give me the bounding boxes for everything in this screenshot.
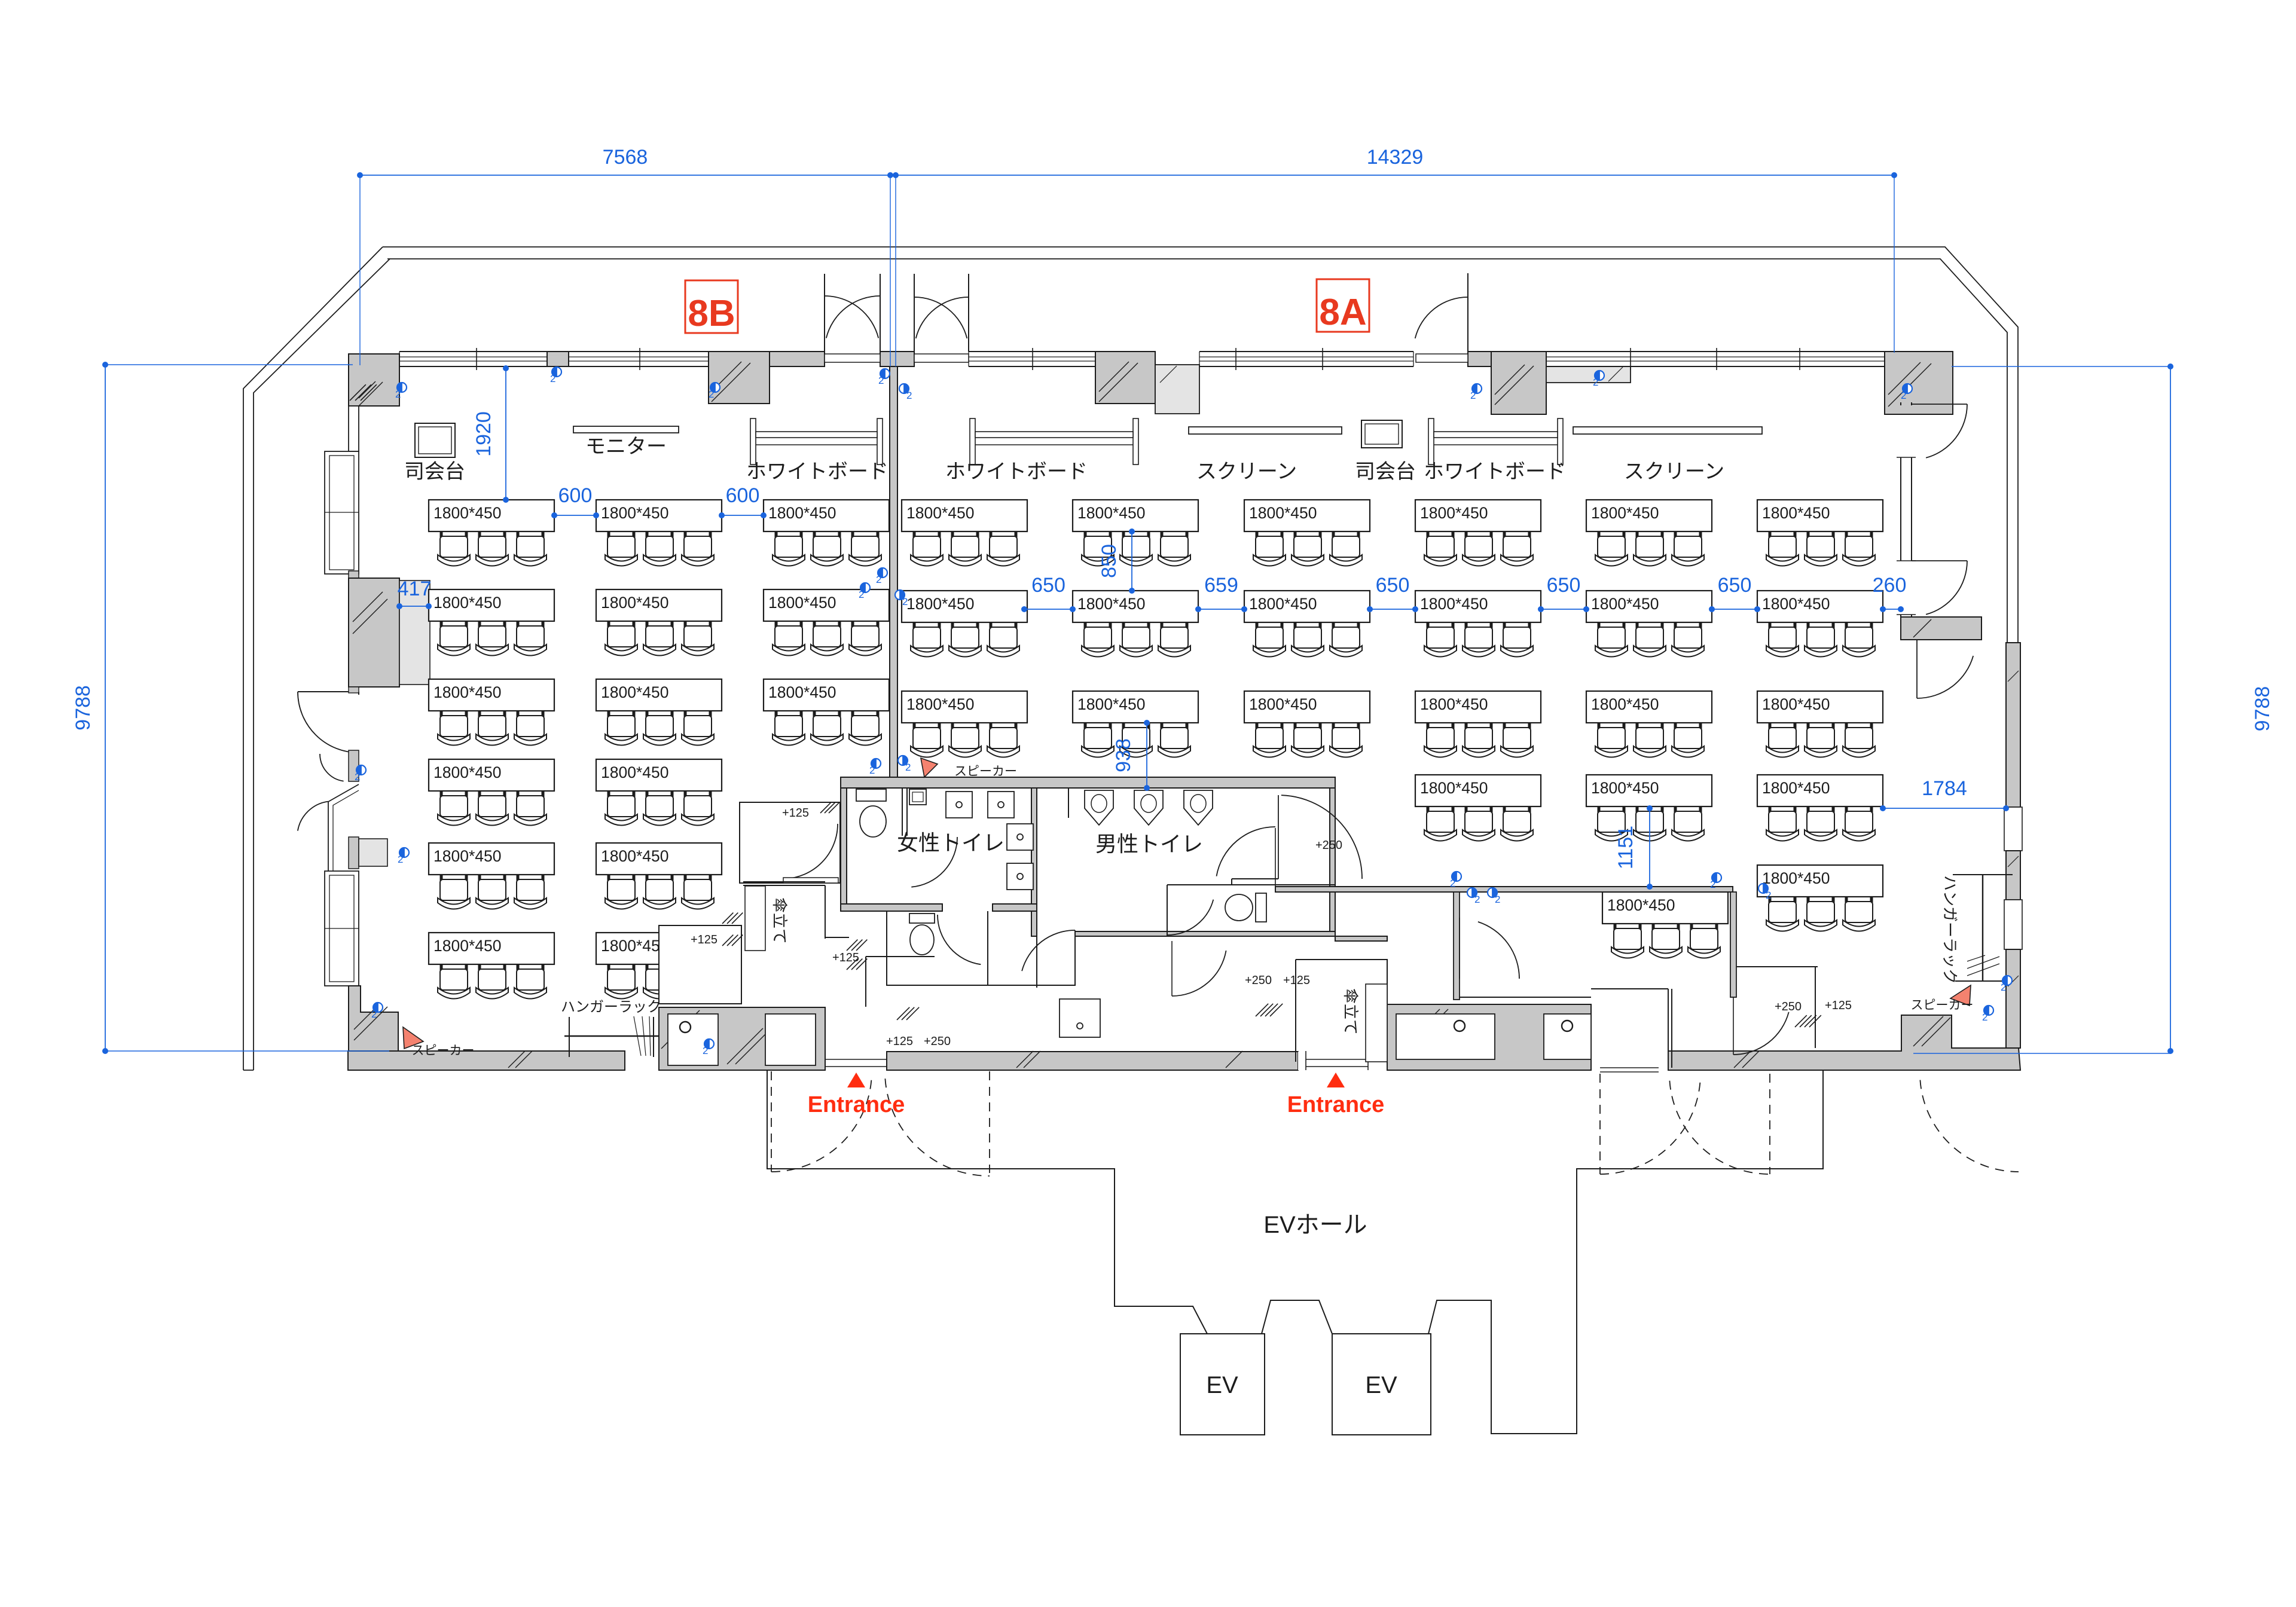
svg-text:+125: +125 [782, 806, 809, 820]
svg-text:2: 2 [902, 596, 908, 607]
svg-text:1800*450: 1800*450 [1591, 595, 1659, 613]
svg-text:1800*450: 1800*450 [1420, 504, 1488, 522]
svg-text:スクリーン: スクリーン [1624, 460, 1724, 483]
svg-text:+250: +250 [924, 1035, 951, 1048]
svg-text:1800*450: 1800*450 [433, 504, 501, 522]
svg-text:+250: +250 [1315, 839, 1342, 852]
svg-text:2: 2 [1495, 894, 1500, 905]
svg-text:ホワイトボード: ホワイトボード [1424, 460, 1566, 483]
svg-text:+125: +125 [1825, 999, 1852, 1012]
svg-text:2: 2 [1901, 390, 1906, 401]
svg-text:+125: +125 [691, 933, 717, 946]
svg-text:2: 2 [878, 375, 884, 386]
svg-text:1800*450: 1800*450 [1077, 595, 1145, 613]
svg-text:1800*450: 1800*450 [1420, 779, 1488, 797]
svg-text:Entrance: Entrance [1287, 1092, 1385, 1117]
svg-text:1800*450: 1800*450 [1420, 595, 1488, 613]
svg-text:+125: +125 [832, 951, 859, 964]
svg-text:モニター: モニター [585, 435, 667, 458]
svg-text:司会台: 司会台 [1355, 460, 1416, 483]
svg-text:1800*450: 1800*450 [433, 594, 501, 612]
svg-text:2: 2 [1766, 890, 1771, 901]
svg-text:EV: EV [1365, 1372, 1397, 1398]
svg-text:14329: 14329 [1367, 146, 1424, 169]
svg-text:1800*450: 1800*450 [1591, 504, 1659, 522]
svg-text:1800*450: 1800*450 [601, 763, 668, 781]
svg-text:1800*450: 1800*450 [768, 594, 836, 612]
svg-text:1800*450: 1800*450 [1420, 695, 1488, 713]
svg-text:2: 2 [355, 771, 360, 783]
svg-text:7568: 7568 [603, 146, 648, 169]
svg-text:2: 2 [1982, 1012, 1987, 1023]
svg-text:938: 938 [1112, 738, 1135, 772]
svg-text:+250: +250 [1775, 1000, 1802, 1013]
svg-text:1800*450: 1800*450 [433, 763, 501, 781]
svg-text:2: 2 [1470, 390, 1476, 401]
svg-text:2: 2 [2001, 982, 2006, 993]
svg-text:650: 650 [1547, 574, 1581, 597]
svg-text:2: 2 [906, 390, 912, 401]
svg-text:1800*450: 1800*450 [601, 683, 668, 701]
svg-text:1800*450: 1800*450 [601, 504, 668, 522]
svg-text:1800*450: 1800*450 [1762, 595, 1830, 613]
svg-text:1800*450: 1800*450 [1762, 504, 1830, 522]
svg-text:傘立て: 傘立て [771, 897, 789, 944]
svg-text:2: 2 [1593, 377, 1598, 388]
svg-text:EV: EV [1206, 1372, 1238, 1398]
svg-text:司会台: 司会台 [404, 460, 465, 483]
svg-text:ホワイトボード: ホワイトボード [746, 460, 889, 483]
svg-text:1800*450: 1800*450 [1249, 504, 1317, 522]
svg-text:スピーカー: スピーカー [412, 1044, 475, 1058]
svg-text:2: 2 [1474, 894, 1480, 905]
svg-text:650: 650 [1031, 574, 1065, 597]
svg-text:1800*450: 1800*450 [1591, 695, 1659, 713]
svg-text:650: 650 [1376, 574, 1410, 597]
svg-text:+125: +125 [886, 1035, 913, 1048]
svg-text:1800*450: 1800*450 [1762, 869, 1830, 887]
svg-text:傘立て: 傘立て [1342, 988, 1360, 1035]
svg-text:ホワイトボード: ホワイトボード [945, 460, 1088, 483]
svg-text:男性トイレ: 男性トイレ [1095, 832, 1203, 856]
svg-text:2: 2 [869, 765, 875, 776]
svg-text:260: 260 [1873, 574, 1907, 597]
svg-text:659: 659 [1204, 574, 1238, 597]
svg-text:2: 2 [905, 762, 911, 773]
svg-text:600: 600 [726, 484, 760, 507]
svg-text:1800*450: 1800*450 [906, 595, 974, 613]
svg-text:1800*450: 1800*450 [768, 504, 836, 522]
svg-text:2: 2 [395, 389, 401, 400]
svg-text:EVホール: EVホール [1263, 1212, 1367, 1238]
svg-text:2: 2 [709, 389, 714, 400]
svg-text:1784: 1784 [1922, 777, 1967, 800]
svg-text:ハンガーラック: ハンガーラック [1941, 875, 1959, 984]
svg-text:417: 417 [398, 578, 432, 600]
svg-text:2: 2 [550, 373, 555, 384]
svg-text:1800*450: 1800*450 [601, 594, 668, 612]
svg-text:+250: +250 [1245, 974, 1272, 987]
svg-text:9788: 9788 [2251, 686, 2274, 732]
svg-text:2: 2 [371, 1009, 377, 1020]
svg-text:2: 2 [876, 574, 881, 585]
svg-text:+125: +125 [1283, 974, 1310, 987]
svg-text:1800*450: 1800*450 [601, 847, 668, 865]
svg-text:1800*450: 1800*450 [433, 683, 501, 701]
svg-text:850: 850 [1098, 544, 1120, 578]
svg-text:2: 2 [1450, 878, 1455, 889]
svg-text:1800*450: 1800*450 [1591, 779, 1659, 797]
svg-text:1800*450: 1800*450 [1077, 695, 1145, 713]
svg-text:9788: 9788 [72, 685, 94, 731]
svg-text:1800*450: 1800*450 [1762, 779, 1830, 797]
svg-text:2: 2 [859, 589, 864, 600]
svg-text:1800*450: 1800*450 [1077, 504, 1145, 522]
svg-text:スピーカー: スピーカー [954, 765, 1017, 778]
svg-text:1800*450: 1800*450 [433, 847, 501, 865]
svg-text:スクリーン: スクリーン [1196, 460, 1297, 483]
svg-text:ハンガーラック: ハンガーラック [561, 999, 661, 1015]
svg-text:1920: 1920 [472, 411, 495, 457]
svg-text:1800*450: 1800*450 [906, 695, 974, 713]
svg-text:スピーカー: スピーカー [1911, 998, 1974, 1012]
svg-text:8A: 8A [1319, 292, 1366, 333]
svg-text:1800*450: 1800*450 [433, 937, 501, 955]
svg-text:2: 2 [703, 1045, 708, 1056]
svg-text:600: 600 [558, 484, 593, 507]
svg-text:1800*450: 1800*450 [1249, 695, 1317, 713]
svg-text:2: 2 [398, 854, 403, 865]
svg-text:1151: 1151 [1614, 826, 1637, 869]
svg-text:女性トイレ: 女性トイレ [897, 830, 1004, 855]
svg-text:1800*450: 1800*450 [906, 504, 974, 522]
svg-text:1800*450: 1800*450 [1762, 695, 1830, 713]
svg-text:Entrance: Entrance [808, 1092, 905, 1117]
svg-text:1800*450: 1800*450 [1249, 595, 1317, 613]
svg-text:1800*450: 1800*450 [1607, 896, 1675, 914]
svg-text:1800*450: 1800*450 [768, 683, 836, 701]
svg-text:650: 650 [1718, 574, 1752, 597]
svg-text:2: 2 [1710, 879, 1715, 890]
svg-text:8B: 8B [688, 293, 735, 334]
